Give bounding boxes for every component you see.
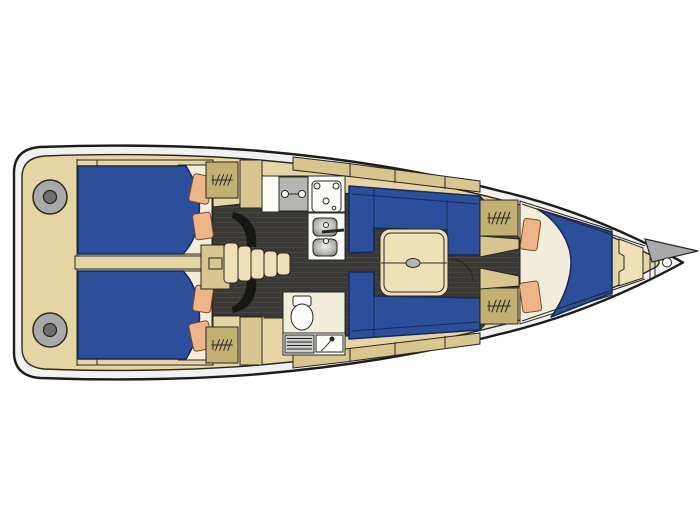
knob-icon — [332, 206, 336, 210]
cabinet — [240, 160, 262, 208]
burner-icon — [299, 191, 306, 198]
tap-knob-icon — [324, 223, 329, 228]
aft-cabin-starboard — [77, 269, 214, 365]
burner-icon — [282, 191, 289, 198]
washbasin-icon — [316, 335, 343, 352]
faucet-icon — [322, 230, 344, 232]
winch-hub-icon — [44, 191, 57, 204]
step-tread — [238, 246, 251, 281]
pillow-icon — [520, 218, 541, 251]
step-tread — [277, 253, 290, 275]
aft-cabin-port — [77, 160, 214, 256]
aft-cabin-port-berth — [78, 166, 199, 254]
bow-fitting-icon — [663, 258, 672, 267]
pillow-icon — [519, 281, 542, 313]
pot-holder-icon — [333, 183, 339, 189]
step-tread — [251, 249, 264, 279]
tap-knob-icon — [324, 239, 329, 244]
cockpit-winch-starboard — [33, 313, 67, 347]
berth-divider — [75, 256, 203, 269]
head — [283, 292, 345, 355]
yacht-layout-canvas — [0, 0, 700, 525]
pot-holder-icon — [314, 183, 320, 189]
shower-grate-icon — [285, 335, 314, 353]
step-tread — [224, 243, 238, 283]
step-tread — [264, 251, 277, 277]
table-handle-icon — [406, 259, 420, 268]
cockpit-winch-port — [33, 180, 67, 214]
pillow-icon — [192, 212, 213, 240]
yacht-layout-svg — [0, 0, 700, 525]
aft-cabin-starboard-berth — [78, 271, 199, 359]
toilet-icon — [291, 304, 313, 330]
cabinet — [240, 317, 262, 365]
companionway-handle — [209, 258, 222, 269]
burner-icon — [323, 198, 329, 204]
winch-hub-icon — [44, 324, 57, 337]
